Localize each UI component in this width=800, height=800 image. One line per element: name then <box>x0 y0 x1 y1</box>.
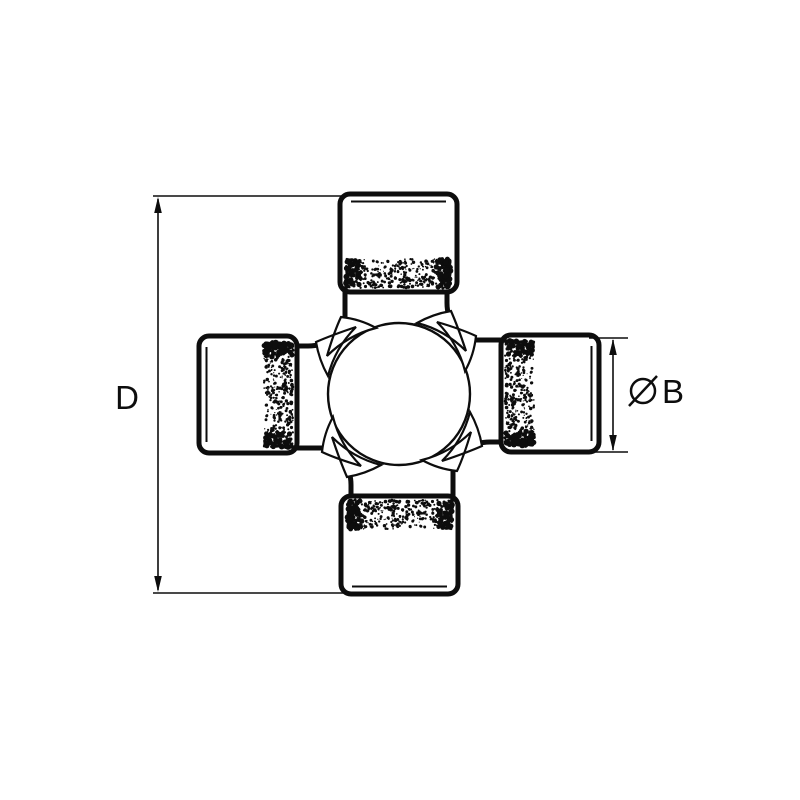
dimension-b: B <box>589 338 684 452</box>
arrowhead-up-icon <box>609 339 617 355</box>
universal-joint-cross-drawing: D B <box>0 0 800 800</box>
arrowhead-down-icon <box>609 435 617 451</box>
dimension-label-b: B <box>662 373 684 410</box>
center-journal-circle <box>328 323 470 465</box>
arrowhead-up-icon <box>154 197 162 213</box>
bearing-cap-arm-top <box>340 194 457 292</box>
dimension-label-d: D <box>115 379 139 416</box>
technical-drawing-canvas: D B <box>0 0 800 800</box>
bearing-cap-arm-right <box>501 335 599 452</box>
diameter-symbol-icon <box>629 376 657 406</box>
bearing-cap-arm-left <box>199 336 297 453</box>
arrowhead-down-icon <box>154 576 162 592</box>
bearing-cap-arm-bottom <box>341 496 458 594</box>
